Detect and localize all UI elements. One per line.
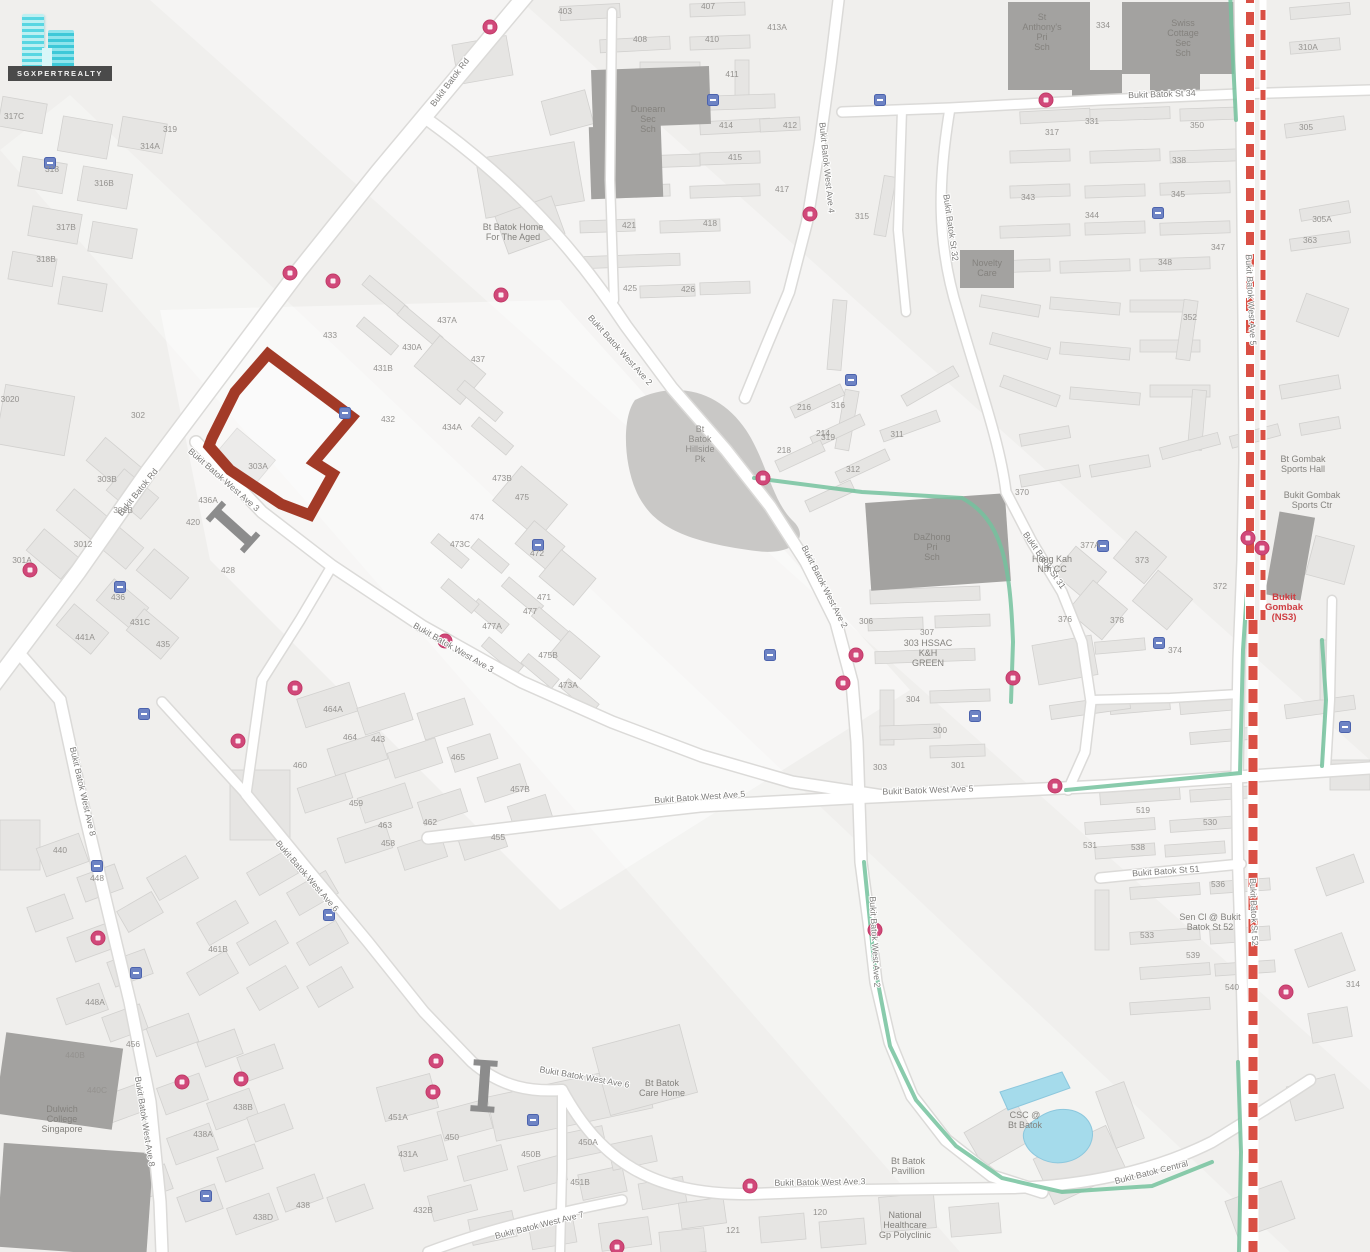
building — [1010, 184, 1070, 198]
bus-stop-glyph — [236, 739, 241, 744]
poi-label: Hong KahNth CC — [1032, 554, 1072, 574]
poi-label: DulwichCollegeSingapore — [41, 1104, 82, 1134]
road-label: Bukit Batok West Ave 3 — [774, 1176, 865, 1188]
block-label: 418 — [703, 218, 717, 228]
block-label: 305 — [1299, 122, 1313, 132]
school-icon-glyph — [710, 99, 716, 101]
building — [1010, 149, 1070, 163]
block-label: 434A — [442, 422, 462, 432]
block-label: 338 — [1172, 155, 1186, 165]
bus-stop-glyph — [431, 1090, 436, 1095]
block-label: 448A — [85, 997, 105, 1007]
block-label: 420 — [186, 517, 200, 527]
bus-stop-glyph — [1011, 676, 1016, 681]
block-label: 315 — [855, 211, 869, 221]
block-label: 473C — [450, 539, 470, 549]
map-svg: Bukit Batok RdBukit Batok RdBukit Batok … — [0, 0, 1370, 1252]
block-label: 216 — [797, 402, 811, 412]
institution-building — [0, 1143, 153, 1252]
building — [759, 1213, 806, 1243]
institution-building — [865, 493, 1011, 591]
map-canvas[interactable]: Bukit Batok RdBukit Batok RdBukit Batok … — [0, 0, 1370, 1252]
block-label: 318 — [45, 164, 59, 174]
school-icon-glyph — [342, 412, 348, 414]
school-icon-glyph — [535, 544, 541, 546]
block-label: 317 — [1045, 127, 1059, 137]
block-label: 302 — [131, 410, 145, 420]
bus-stop-glyph — [615, 1245, 620, 1250]
block-label: 374 — [1168, 645, 1182, 655]
block-label: 317B — [56, 222, 76, 232]
bus-stop-glyph — [808, 212, 813, 217]
school-icon-glyph — [203, 1195, 209, 1197]
block-label: 345 — [1171, 189, 1185, 199]
building — [1130, 300, 1190, 312]
building — [819, 1218, 866, 1248]
block-label: 464A — [323, 704, 343, 714]
block-label: 317C — [4, 111, 24, 121]
block-label: 421 — [622, 220, 636, 230]
block-label: 307 — [920, 627, 934, 637]
block-label: 530 — [1203, 817, 1217, 827]
block-label: 3020 — [1, 394, 20, 404]
bus-stop-glyph — [499, 293, 504, 298]
block-label: 312 — [846, 464, 860, 474]
bus-stop-glyph — [1260, 546, 1265, 551]
block-label: 462 — [423, 817, 437, 827]
block-label: 438A — [193, 1129, 213, 1139]
block-label: 376 — [1058, 614, 1072, 624]
school-icon-glyph — [133, 972, 139, 974]
block-label: 438 — [296, 1200, 310, 1210]
block-label: 539 — [1186, 950, 1200, 960]
block-label: 414 — [719, 120, 733, 130]
poi-label: Bt GombakSports Hall — [1280, 454, 1326, 474]
block-label: 431B — [373, 363, 393, 373]
bus-stop-glyph — [239, 1077, 244, 1082]
block-label: 533 — [1140, 930, 1154, 940]
block-label: 475B — [538, 650, 558, 660]
block-label: 459 — [349, 798, 363, 808]
block-label: 435 — [156, 639, 170, 649]
block-label: 310A — [1298, 42, 1318, 52]
block-label: 451B — [570, 1177, 590, 1187]
block-label: 426 — [681, 284, 695, 294]
block-label: 433 — [323, 330, 337, 340]
school-icon-glyph — [530, 1119, 536, 1121]
block-label: 436A — [198, 495, 218, 505]
road — [560, 1090, 562, 1252]
block-label: 363 — [1303, 235, 1317, 245]
block-label: 318B — [36, 254, 56, 264]
bus-stop-glyph — [1044, 98, 1049, 103]
poi-label: CSC @Bt Batok — [1008, 1110, 1043, 1130]
logo-building-icon — [22, 14, 44, 70]
block-label: 316B — [94, 178, 114, 188]
bus-stop-glyph — [761, 476, 766, 481]
block-label: 448 — [90, 873, 104, 883]
block-label: 432B — [413, 1205, 433, 1215]
block-label: 458 — [381, 838, 395, 848]
block-label: 350 — [1190, 120, 1204, 130]
block-label: 301B — [113, 505, 133, 515]
block-label: 463 — [378, 820, 392, 830]
poi-label: Bt BatokPavillion — [891, 1156, 926, 1176]
school-icon-glyph — [848, 379, 854, 381]
block-label: 121 — [726, 1225, 740, 1235]
poi-label: Bukit GombakSports Ctr — [1284, 490, 1341, 510]
block-label: 348 — [1158, 257, 1172, 267]
block-label: 415 — [728, 152, 742, 162]
school-icon-glyph — [1156, 642, 1162, 644]
block-label: 334 — [1096, 20, 1110, 30]
bus-stop-glyph — [488, 25, 493, 30]
bus-stop-glyph — [748, 1184, 753, 1189]
bus-stop-glyph — [96, 936, 101, 941]
block-label: 431C — [130, 617, 150, 627]
school-icon-glyph — [117, 586, 123, 588]
building — [1060, 259, 1130, 273]
block-label: 450B — [521, 1149, 541, 1159]
block-label: 214 — [816, 428, 830, 438]
building — [868, 617, 923, 631]
bus-stop-glyph — [331, 279, 336, 284]
block-label: 460 — [293, 760, 307, 770]
block-label: 344 — [1085, 210, 1099, 220]
block-label: 438B — [233, 1102, 253, 1112]
building — [1090, 149, 1160, 163]
bus-stop-glyph — [854, 653, 859, 658]
school-icon-glyph — [326, 914, 332, 916]
building — [935, 614, 990, 628]
building — [690, 35, 750, 50]
bus-stop-glyph — [288, 271, 293, 276]
brand-logo: SGXPERTREALTY — [8, 4, 118, 90]
block-label: 311 — [890, 429, 904, 439]
block-label: 306 — [859, 616, 873, 626]
block-label: 472 — [530, 548, 544, 558]
building — [1160, 221, 1230, 235]
building — [880, 724, 940, 740]
block-label: 456 — [126, 1039, 140, 1049]
school-icon-glyph — [94, 865, 100, 867]
block-label: 303 — [873, 762, 887, 772]
poi-label: Bt BatokCare Home — [639, 1078, 685, 1098]
block-label: 430A — [402, 342, 422, 352]
block-label: 343 — [1021, 192, 1035, 202]
block-label: 473A — [558, 680, 578, 690]
block-label: 451A — [388, 1112, 408, 1122]
block-label: 407 — [701, 1, 715, 11]
block-label: 408 — [633, 34, 647, 44]
logo-wordmark: SGXPERTREALTY — [8, 66, 112, 81]
bus-stop-glyph — [180, 1080, 185, 1085]
school-icon-glyph — [972, 715, 978, 717]
building — [1095, 890, 1109, 950]
block-label: 432 — [381, 414, 395, 424]
block-label: 305A — [1312, 214, 1332, 224]
block-label: 457B — [510, 784, 530, 794]
school-icon-glyph — [141, 713, 147, 715]
block-label: 370 — [1015, 487, 1029, 497]
block-label: 540 — [1225, 982, 1239, 992]
block-label: 417 — [775, 184, 789, 194]
bus-stop-glyph — [293, 686, 298, 691]
building — [1140, 257, 1210, 271]
block-label: 471 — [537, 592, 551, 602]
school-icon-glyph — [1155, 212, 1161, 214]
block-label: 440B — [65, 1050, 85, 1060]
block-label: 316 — [831, 400, 845, 410]
school-icon-glyph — [767, 654, 773, 656]
block-label: 412 — [783, 120, 797, 130]
block-label: 373 — [1135, 555, 1149, 565]
block-label: 477 — [523, 606, 537, 616]
building — [700, 281, 750, 295]
block-label: 428 — [221, 565, 235, 575]
block-label: 536 — [1211, 879, 1225, 889]
building — [949, 1203, 1001, 1237]
block-label: 410 — [705, 34, 719, 44]
building — [0, 820, 40, 870]
block-label: 301A — [12, 555, 32, 565]
bus-stop-glyph — [841, 681, 846, 686]
block-label: 464 — [343, 732, 357, 742]
block-label: 477A — [482, 621, 502, 631]
block-label: 304 — [906, 694, 920, 704]
block-label: 531 — [1083, 840, 1097, 850]
block-label: 301 — [951, 760, 965, 770]
block-label: 437 — [471, 354, 485, 364]
block-label: 319 — [163, 124, 177, 134]
block-label: 314A — [140, 141, 160, 151]
poi-label: Bt Batok HomeFor The Aged — [483, 222, 544, 242]
block-label: 352 — [1183, 312, 1197, 322]
block-label: 314 — [1346, 979, 1360, 989]
block-label: 538 — [1131, 842, 1145, 852]
block-label: 436 — [111, 592, 125, 602]
block-label: 441A — [75, 632, 95, 642]
bus-stop-glyph — [1284, 990, 1289, 995]
block-label: 450 — [445, 1132, 459, 1142]
block-label: 440 — [53, 845, 67, 855]
building — [1180, 107, 1240, 121]
bus-stop-glyph — [1053, 784, 1058, 789]
bus-stop-glyph — [434, 1059, 439, 1064]
block-label: 425 — [623, 283, 637, 293]
block-label: 475 — [515, 492, 529, 502]
road — [610, 12, 614, 300]
block-label: 461B — [208, 944, 228, 954]
building — [1085, 221, 1145, 235]
block-label: 403 — [558, 6, 572, 16]
block-label: 438D — [253, 1212, 273, 1222]
building — [690, 184, 760, 198]
block-label: 519 — [1136, 805, 1150, 815]
building — [690, 2, 745, 17]
building — [659, 1228, 706, 1252]
building — [1085, 184, 1145, 198]
block-label: 465 — [451, 752, 465, 762]
institution-building — [589, 125, 663, 199]
building — [1000, 224, 1070, 238]
block-label: 440C — [87, 1085, 107, 1095]
block-label: 347 — [1211, 242, 1225, 252]
block-label: 413A — [767, 22, 787, 32]
block-label: 120 — [813, 1207, 827, 1217]
block-label: 331 — [1085, 116, 1099, 126]
block-label: 303A — [248, 461, 268, 471]
block-label: 218 — [777, 445, 791, 455]
building — [1090, 107, 1170, 122]
building — [930, 689, 990, 703]
poi-label: Sen Cl @ BukitBatok St 52 — [1179, 912, 1241, 932]
block-label: 303B — [97, 474, 117, 484]
block-label: 455 — [491, 832, 505, 842]
school-icon-glyph — [1100, 545, 1106, 547]
bus-stop-glyph — [1246, 536, 1251, 541]
block-label: 377A — [1080, 540, 1100, 550]
block-label: 378 — [1110, 615, 1124, 625]
block-label: 372 — [1213, 581, 1227, 591]
block-label: 474 — [470, 512, 484, 522]
block-label: 3012 — [74, 539, 93, 549]
school-icon-glyph — [877, 99, 883, 101]
building — [735, 60, 749, 100]
block-label: 437A — [437, 315, 457, 325]
block-label: 411 — [725, 69, 739, 79]
school-icon-glyph — [1342, 726, 1348, 728]
block-label: 443 — [371, 734, 385, 744]
building — [930, 744, 985, 758]
block-label: 473B — [492, 473, 512, 483]
building — [1308, 1007, 1353, 1043]
building — [710, 94, 775, 110]
block-label: 450A — [578, 1137, 598, 1147]
bus-stop-glyph — [28, 568, 33, 573]
block-label: 300 — [933, 725, 947, 735]
block-label: 431A — [398, 1149, 418, 1159]
